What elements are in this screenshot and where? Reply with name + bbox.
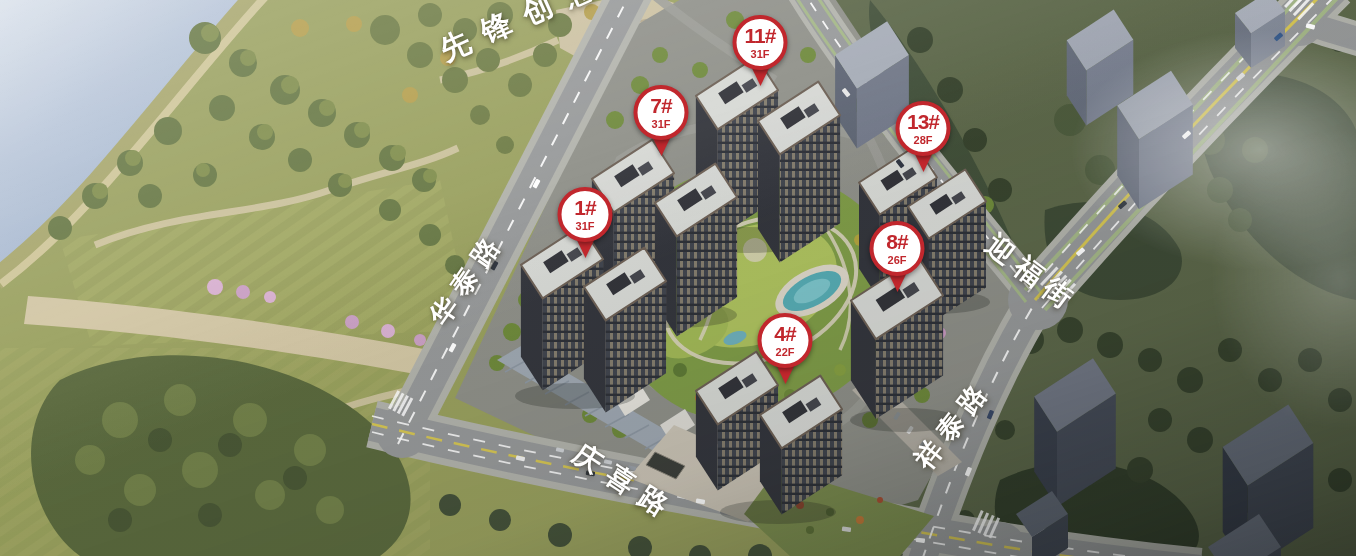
pin-circle: 13# 28F [896, 101, 951, 156]
building-number: 4# [774, 323, 795, 344]
building-floors: 31F [751, 49, 770, 60]
pin-circle: 1# 31F [558, 187, 613, 242]
building-floors: 31F [576, 221, 595, 232]
building-pin-13[interactable]: 13# 28F [896, 101, 951, 172]
building-pin-11[interactable]: 11# 31F [733, 15, 788, 86]
building-floors: 28F [914, 135, 933, 146]
building-number: 1# [574, 197, 595, 218]
building-pin-1[interactable]: 1# 31F [558, 187, 613, 258]
building-floors: 22F [776, 347, 795, 358]
building-pin-4[interactable]: 4# 22F [758, 313, 813, 384]
pin-circle: 8# 26F [870, 221, 925, 276]
building-floors: 31F [652, 119, 671, 130]
building-number: 7# [650, 95, 671, 116]
building-number: 13# [907, 111, 939, 132]
pin-circle: 11# 31F [733, 15, 788, 70]
building-floors: 26F [888, 255, 907, 266]
vignette [0, 0, 1356, 556]
building-number: 8# [886, 231, 907, 252]
aerial-render [0, 0, 1356, 556]
aerial-masterplan: 先锋创意 华泰路 迎福街 祥泰路 庆喜路 1# 31F 7# 31F 11# 3… [0, 0, 1356, 556]
building-pin-7[interactable]: 7# 31F [634, 85, 689, 156]
pin-circle: 4# 22F [758, 313, 813, 368]
building-number: 11# [745, 25, 776, 46]
building-pin-8[interactable]: 8# 26F [870, 221, 925, 292]
pin-circle: 7# 31F [634, 85, 689, 140]
